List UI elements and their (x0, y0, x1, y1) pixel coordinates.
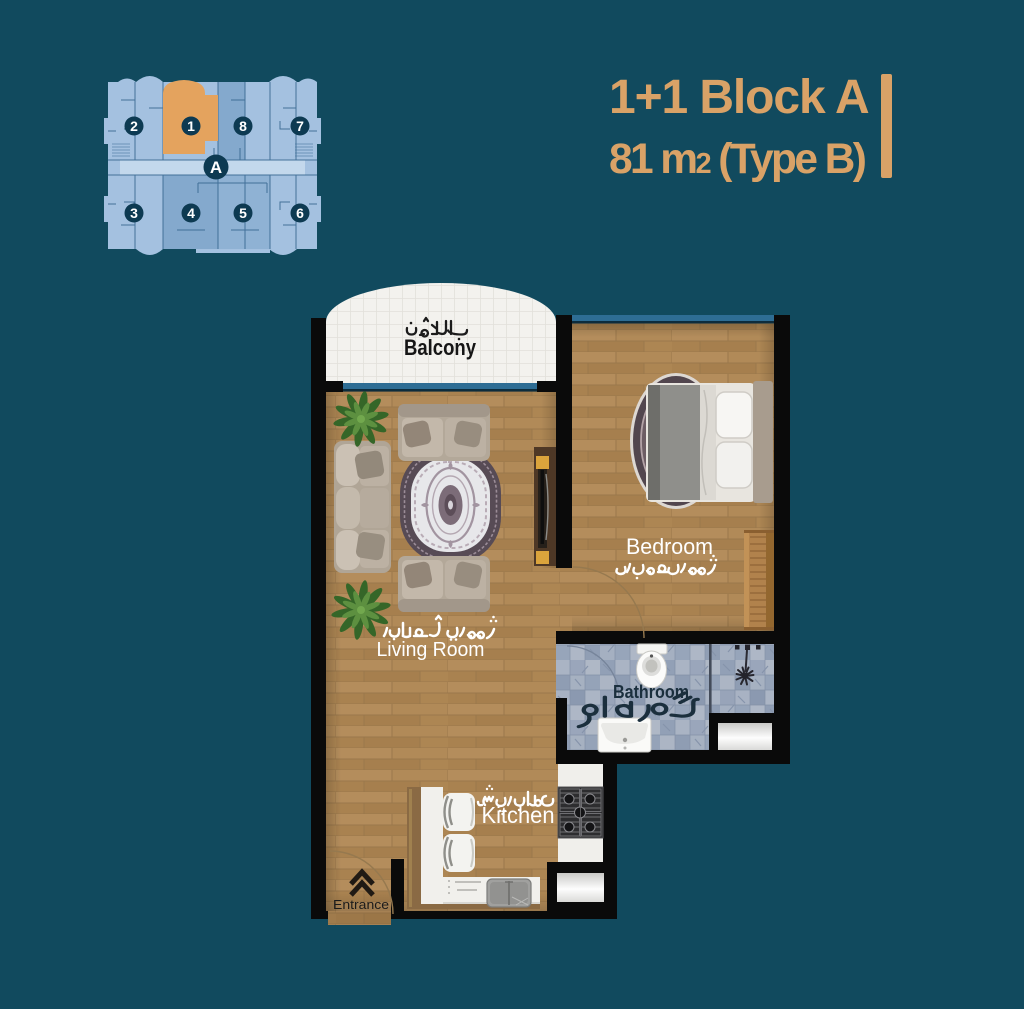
svg-text:A: A (210, 158, 222, 177)
svg-text:2: 2 (130, 118, 138, 134)
svg-text:Kitchen: Kitchen (482, 802, 555, 828)
svg-text:3: 3 (130, 205, 138, 221)
svg-text:7: 7 (296, 118, 304, 134)
svg-text:Balcony: Balcony (404, 335, 477, 360)
svg-text:4: 4 (187, 205, 195, 221)
svg-text:81 m2 (Type B): 81 m2 (Type B) (609, 136, 866, 183)
svg-text:5: 5 (239, 205, 247, 221)
svg-text:6: 6 (296, 205, 304, 221)
svg-text:Entrance: Entrance (333, 898, 389, 912)
svg-text:Bathroom: Bathroom (613, 682, 689, 702)
svg-text:Living Room: Living Room (377, 639, 485, 661)
svg-text:Bedroom: Bedroom (626, 534, 713, 559)
svg-text:8: 8 (239, 118, 247, 134)
svg-text:1: 1 (187, 118, 195, 134)
svg-text:1+1 Block A: 1+1 Block A (609, 71, 869, 124)
